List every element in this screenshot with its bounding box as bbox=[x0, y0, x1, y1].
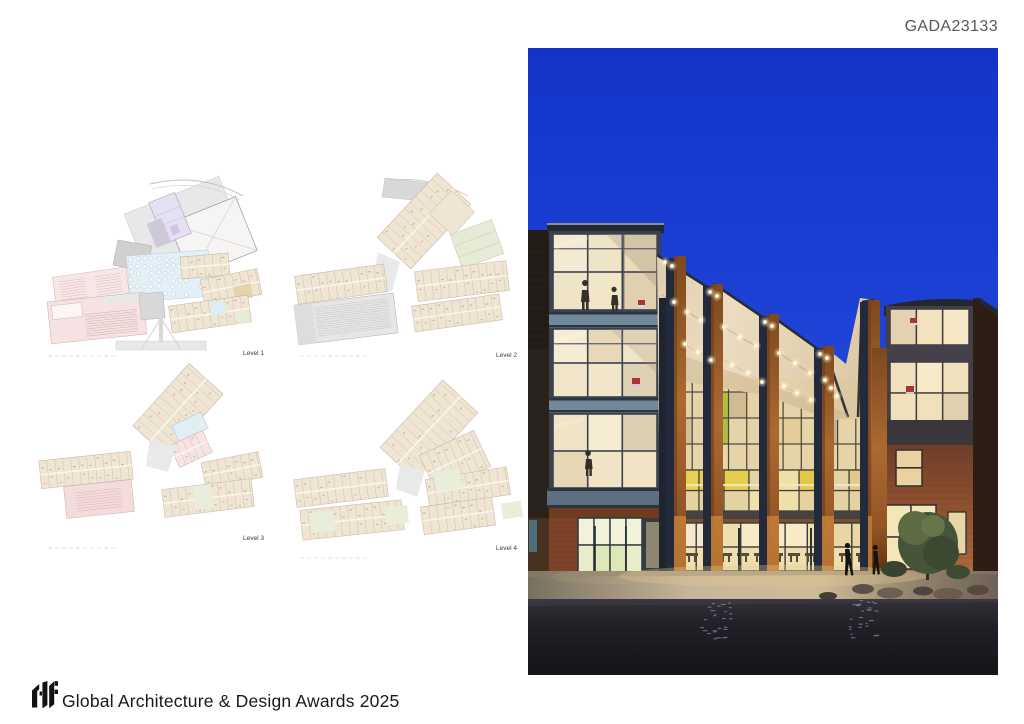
svg-text:Level 2: Level 2 bbox=[496, 352, 517, 359]
svg-text:Level 1: Level 1 bbox=[243, 350, 264, 357]
svg-text:Level 3: Level 3 bbox=[243, 535, 264, 542]
svg-text:Level 4: Level 4 bbox=[496, 545, 517, 552]
